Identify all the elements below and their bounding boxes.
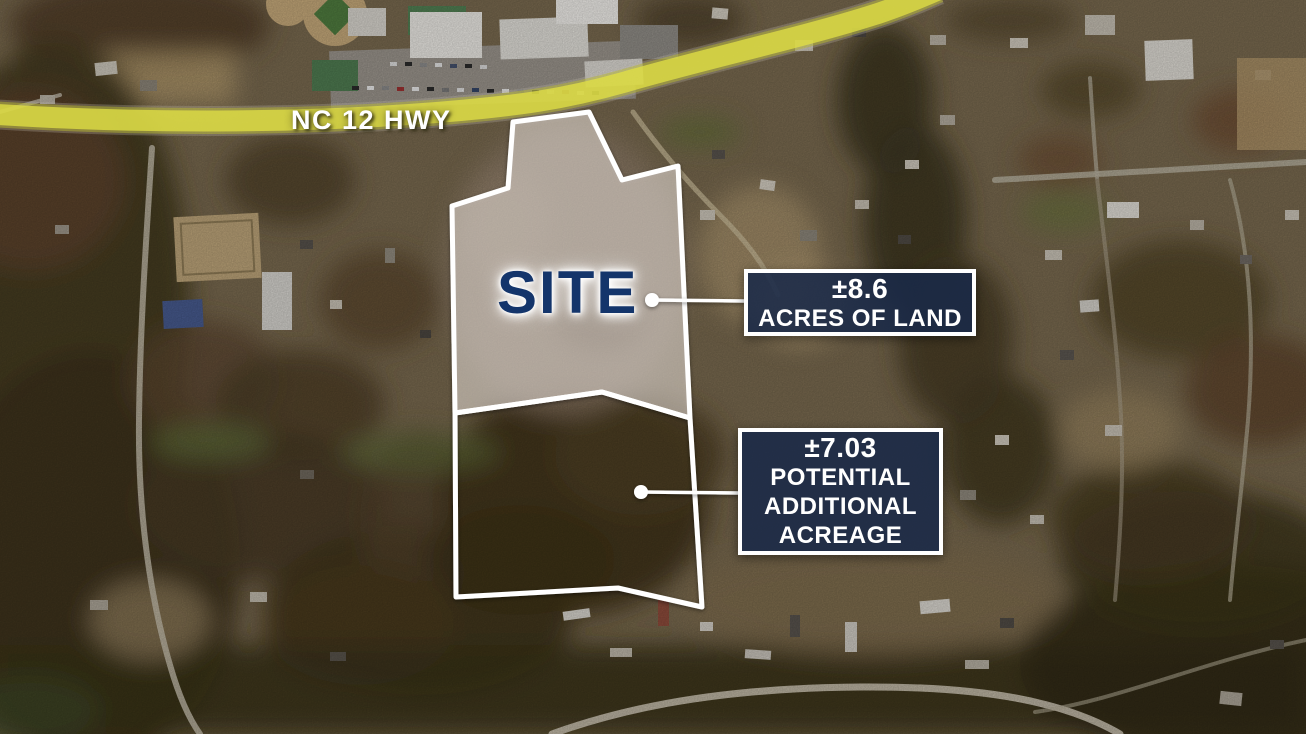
marker-dot-acres: [645, 293, 659, 307]
satellite-map-canvas: [0, 0, 1306, 734]
additional-value: ±7.03: [742, 433, 939, 463]
aerial-site-map: NC 12 HWY SITE ±8.6 ACRES OF LAND ±7.03 …: [0, 0, 1306, 734]
leader-line-acres: [652, 300, 746, 301]
marker-dot-additional: [634, 485, 648, 499]
additional-line-2: ADDITIONAL: [742, 492, 939, 521]
acres-label: ACRES OF LAND: [748, 304, 972, 333]
additional-line-3: ACREAGE: [742, 521, 939, 550]
leader-line-additional: [641, 492, 740, 493]
site-label: SITE: [497, 258, 638, 327]
callout-acres-of-land: ±8.6 ACRES OF LAND: [744, 269, 976, 336]
acres-value: ±8.6: [748, 274, 972, 304]
highway-label: NC 12 HWY: [291, 105, 452, 136]
additional-line-1: POTENTIAL: [742, 463, 939, 492]
callout-additional-acreage: ±7.03 POTENTIAL ADDITIONAL ACREAGE: [738, 428, 943, 555]
